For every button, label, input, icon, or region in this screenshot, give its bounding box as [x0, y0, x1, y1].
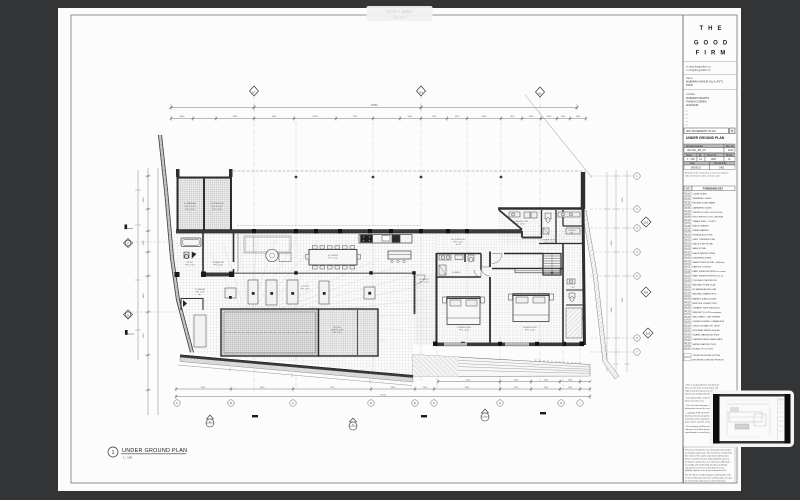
- svg-text:e: info@thegoodfirm.co: e: info@thegoodfirm.co: [686, 69, 711, 72]
- svg-text:FFL +0.00: FFL +0.00: [525, 330, 535, 332]
- svg-text:E: E: [414, 401, 416, 405]
- svg-text:1010: 1010: [728, 149, 734, 152]
- svg-text:C: C: [292, 401, 294, 405]
- svg-text:FK-20: FK-20: [685, 280, 690, 282]
- svg-text:14 BATH: 14 BATH: [452, 271, 461, 274]
- svg-text:1274 × 1651: 1274 × 1651: [386, 9, 412, 14]
- svg-text:All work to be carried out in: All work to be carried out in strict acc…: [685, 172, 729, 175]
- svg-text:FK-25: FK-25: [685, 303, 690, 305]
- svg-text:A: A: [176, 401, 178, 405]
- svg-text:SAND STONE: SAND STONE: [693, 247, 707, 250]
- svg-text:GOOD: GOOD: [694, 41, 732, 47]
- svg-text:FK-28: FK-28: [685, 316, 690, 318]
- svg-text:FK-13: FK-13: [685, 248, 690, 250]
- svg-text:07: 07: [252, 91, 256, 95]
- svg-text:before commencement. Figured d: before commencement. Figured dimensions …: [685, 458, 730, 461]
- svg-text:WATER FEATURE TILES: WATER FEATURE TILES: [693, 343, 717, 346]
- svg-text:FK-08: FK-08: [685, 225, 690, 227]
- svg-text:TIMBER INFILL - IN SITU: TIMBER INFILL - IN SITU: [693, 221, 717, 223]
- svg-text:FK-03: FK-03: [685, 203, 690, 205]
- svg-text:200: 200: [644, 221, 649, 225]
- svg-text:FFL +0.00: FFL +0.00: [459, 330, 469, 332]
- svg-text:Location:: Location:: [686, 93, 696, 96]
- svg-text:FK-35: FK-35: [685, 348, 690, 350]
- svg-text:1 : 100: 1 : 100: [687, 158, 695, 161]
- svg-text:FFL -1.50: FFL -1.50: [333, 332, 342, 334]
- svg-text:NATURAL STONE CLAD: NATURAL STONE CLAD: [693, 284, 716, 287]
- svg-text:BESPOKE JOINERY UNIT: BESPOKE JOINERY UNIT: [693, 303, 718, 305]
- svg-text:- NO. is responsible for check: - NO. is responsible for checking all: [685, 385, 719, 387]
- svg-text:FK-10: FK-10: [685, 234, 690, 236]
- svg-text:BLACK & WH STONE: BLACK & WH STONE: [693, 243, 714, 246]
- svg-text:FFL +0.00: FFL +0.00: [328, 258, 338, 260]
- svg-text:latest revision issue.: latest revision issue.: [685, 400, 705, 403]
- svg-text:EX SANDBLASTED LIME: EX SANDBLASTED LIME: [693, 288, 717, 291]
- svg-text:02 DRESS RM: 02 DRESS RM: [210, 203, 224, 205]
- svg-text:Client:: Client:: [686, 77, 693, 80]
- svg-text:GRAVEL MARGIN 300 WIDE: GRAVEL MARGIN 300 WIDE: [693, 334, 720, 337]
- svg-text:RECESSED LIGHTING PROFILE: RECESSED LIGHTING PROFILE: [693, 359, 724, 361]
- svg-text:FK-27: FK-27: [685, 312, 690, 314]
- svg-text:FK-09: FK-09: [685, 230, 690, 232]
- svg-text:FK-22: FK-22: [685, 289, 690, 291]
- svg-text:FK-17: FK-17: [685, 266, 690, 268]
- svg-text:BURNISHED STEEL: BURNISHED STEEL: [693, 257, 713, 259]
- svg-text:FK-12: FK-12: [685, 243, 690, 245]
- svg-text:04: 04: [419, 91, 423, 95]
- svg-text:PAINTED GYPSUM: PAINTED GYPSUM: [693, 265, 711, 268]
- svg-text:FFL +0.00: FFL +0.00: [185, 265, 195, 267]
- svg-text:GLAZED SCREEN - FRAMELESS: GLAZED SCREEN - FRAMELESS: [693, 320, 725, 323]
- svg-text:B: B: [230, 401, 232, 405]
- svg-text:MOSAIC POOL TILES: MOSAIC POOL TILES: [693, 347, 714, 350]
- svg-text:Sheet Sz: Sheet Sz: [707, 154, 717, 157]
- svg-text:NATURAL TIMBER DECK: NATURAL TIMBER DECK: [693, 293, 717, 296]
- svg-text:FK-01: FK-01: [685, 193, 690, 195]
- svg-text:FK-31: FK-31: [685, 330, 690, 332]
- svg-text:POLISHED PLASTER FIN: POLISHED PLASTER FIN: [693, 279, 718, 282]
- svg-text:FK-19: FK-19: [685, 275, 690, 277]
- svg-text:FK-05: FK-05: [685, 212, 690, 214]
- svg-text:1 : 100: 1 : 100: [123, 456, 133, 460]
- svg-text:GREEN MARBLE: GREEN MARBLE: [693, 229, 710, 232]
- svg-text:ROMA BLACK POINT: ROMA BLACK POINT: [693, 234, 714, 237]
- svg-text:FURNISHING KEY: FURNISHING KEY: [703, 187, 724, 190]
- svg-text:EXTERNAL PAVING 600x300: EXTERNAL PAVING 600x300: [693, 329, 721, 332]
- svg-text:PAINT FINISH INTERIOR sat. ma: PAINT FINISH INTERIOR sat. matte: [693, 270, 727, 273]
- svg-text:Drawn: Drawn: [726, 154, 733, 157]
- svg-text:LAMINATED GLASS: LAMINATED GLASS: [693, 206, 713, 209]
- svg-text:UNDER GROUND PLAN: UNDER GROUND PLAN: [122, 448, 187, 454]
- svg-text:to comply with QCS 2014 and lo: to comply with QCS 2014 and local author…: [685, 464, 728, 467]
- svg-text:For the full list of abbreviat: For the full list of abbreviations and l…: [685, 474, 732, 477]
- svg-text:BRONZE GLASS PANEL: BRONZE GLASS PANEL: [693, 202, 717, 205]
- svg-text:LINEN CURTAIN FULL DROP: LINEN CURTAIN FULL DROP: [693, 325, 721, 328]
- svg-text:14000: 14000: [312, 116, 319, 118]
- svg-text:000: BASEMENT PLAN: 000: BASEMENT PLAN: [686, 129, 716, 133]
- svg-text:4807: 4807: [711, 158, 717, 161]
- svg-text:WC: WC: [571, 287, 575, 289]
- svg-text:to statutory approvals. The Co: to statutory approvals. The Contractor s…: [685, 452, 733, 455]
- svg-text:FK-26: FK-26: [685, 307, 690, 309]
- svg-text:PIVOT ENTRY DOOR - BRONZE: PIVOT ENTRY DOOR - BRONZE: [693, 216, 724, 218]
- svg-text:FK-24: FK-24: [685, 298, 690, 300]
- svg-text:FK-04: FK-04: [685, 207, 690, 209]
- svg-text:FK-33: FK-33: [685, 339, 690, 341]
- svg-text:17930: 17930: [370, 103, 378, 107]
- svg-text:IA: IA: [728, 158, 731, 161]
- svg-text:FK-14: FK-14: [685, 253, 690, 255]
- svg-text:1: 1: [112, 450, 115, 456]
- svg-text:35470: 35470: [380, 395, 387, 397]
- svg-text:FFL +0.00: FFL +0.00: [213, 265, 223, 267]
- svg-text:CLEAR GLASS: CLEAR GLASS: [693, 193, 708, 196]
- svg-text:dims on site prior to any work: dims on site prior to any works and: [685, 387, 719, 390]
- svg-text:BLACK PAINTED STEEL: BLACK PAINTED STEEL: [693, 252, 717, 255]
- svg-text:to sheet 0001 general notes an: to sheet 0001 general notes and key plan…: [685, 477, 733, 480]
- svg-text:600: 600: [646, 332, 651, 336]
- svg-text:FFL +0.00: FFL +0.00: [185, 209, 195, 211]
- svg-text:D: D: [370, 401, 372, 405]
- svg-text:FK-11: FK-11: [685, 239, 690, 241]
- svg-text:IFA/ AVL_BK_00: IFA/ AVL_BK_00: [687, 149, 706, 152]
- svg-text:FK-02: FK-02: [685, 198, 690, 200]
- svg-text:for information only unless no: for information only unless noted otherw…: [685, 480, 727, 483]
- svg-text:UAE: UAE: [719, 166, 724, 169]
- svg-text:FK-30: FK-30: [685, 325, 690, 327]
- svg-text:digitally signed issue record: digitally signed issue record retained o…: [685, 469, 727, 472]
- svg-text:FK-18: FK-18: [685, 271, 690, 273]
- svg-text:THE: THE: [700, 26, 727, 32]
- svg-text:H: H: [560, 401, 562, 405]
- svg-text:scale 62%: scale 62%: [391, 16, 407, 20]
- svg-text:PLANTER REFER LANDSCAPE: PLANTER REFER LANDSCAPE: [693, 338, 724, 341]
- svg-text:These are schematic issue draw: These are schematic issue drawings and s…: [685, 449, 732, 452]
- svg-text:ALWUKAIR: ALWUKAIR: [686, 104, 699, 107]
- svg-text:FK-06: FK-06: [685, 216, 690, 218]
- svg-text:SLIDING DOORS - BOOK FOLD: SLIDING DOORS - BOOK FOLD: [693, 212, 724, 214]
- svg-text:Date: Date: [690, 162, 696, 165]
- svg-text:06/09/23: 06/09/23: [691, 166, 701, 169]
- svg-text:01 HAMMAM: 01 HAMMAM: [184, 202, 196, 205]
- svg-text:DIM 3.0x4.8: DIM 3.0x4.8: [212, 206, 224, 208]
- svg-text:with all relevant codes. Do no: with all relevant codes. Do not scale.: [685, 175, 721, 178]
- svg-text:B: B: [731, 129, 733, 133]
- svg-text:FFL +0.00: FFL +0.00: [212, 209, 222, 211]
- svg-text:▲ UP: ▲ UP: [455, 243, 461, 246]
- svg-text:MARBLE SLAB 1200x600: MARBLE SLAB 1200x600: [693, 297, 718, 300]
- svg-text:G: G: [499, 401, 501, 405]
- svg-text:FK-21: FK-21: [685, 284, 690, 286]
- svg-text:01: 01: [538, 92, 542, 96]
- svg-text:FK-29: FK-29: [685, 321, 690, 323]
- svg-text:BRASS PLATE STONE - 30x30mm: BRASS PLATE STONE - 30x30mm: [693, 261, 726, 264]
- svg-text:FK-15: FK-15: [685, 257, 690, 259]
- svg-text:CEILING MOUNTED FITTING: CEILING MOUNTED FITTING: [693, 355, 721, 357]
- svg-text:DIM 3.2x4.8: DIM 3.2x4.8: [185, 206, 197, 208]
- svg-text:CERAMIC TILES 600x600mm: CERAMIC TILES 600x600mm: [693, 306, 721, 309]
- svg-text:PARQUET FLOOR herringbone: PARQUET FLOOR herringbone: [693, 311, 723, 314]
- svg-text:400: 400: [644, 291, 649, 295]
- svg-text:FK-32: FK-32: [685, 334, 690, 336]
- svg-text:FFL -0.45: FFL -0.45: [301, 289, 310, 291]
- svg-text:FIRM: FIRM: [696, 51, 731, 57]
- svg-text:FFL +0.00: FFL +0.00: [544, 242, 554, 244]
- svg-text:FK-34: FK-34: [685, 344, 690, 346]
- svg-text:be taken in preference to scal: be taken in preference to scaled sizes. …: [685, 461, 731, 464]
- svg-text:GREY TUNDRA STONE: GREY TUNDRA STONE: [693, 238, 716, 241]
- svg-text:FK-23: FK-23: [685, 294, 690, 296]
- svg-text:FK-16: FK-16: [685, 262, 690, 264]
- svg-text:BLACK GRANITE: BLACK GRANITE: [693, 224, 710, 227]
- svg-text:FFL +0.00: FFL +0.00: [515, 224, 525, 226]
- svg-text:KT: KT: [686, 187, 690, 190]
- svg-text:the extent of the works and al: the extent of the works and all site dim…: [685, 455, 729, 458]
- svg-text:PAINT FINISH EXTERIOR ext. fi: PAINT FINISH EXTERIOR ext. fin.: [693, 275, 725, 278]
- svg-text:UNDER GROUND PLAN: UNDER GROUND PLAN: [686, 136, 725, 140]
- svg-text:DOHA: DOHA: [686, 84, 693, 87]
- svg-text:FK-07: FK-07: [685, 221, 690, 223]
- svg-text:TEMPERED GLASS: TEMPERED GLASS: [693, 197, 712, 200]
- svg-text:WALL PANEL - OAK VENEER: WALL PANEL - OAK VENEER: [693, 315, 721, 318]
